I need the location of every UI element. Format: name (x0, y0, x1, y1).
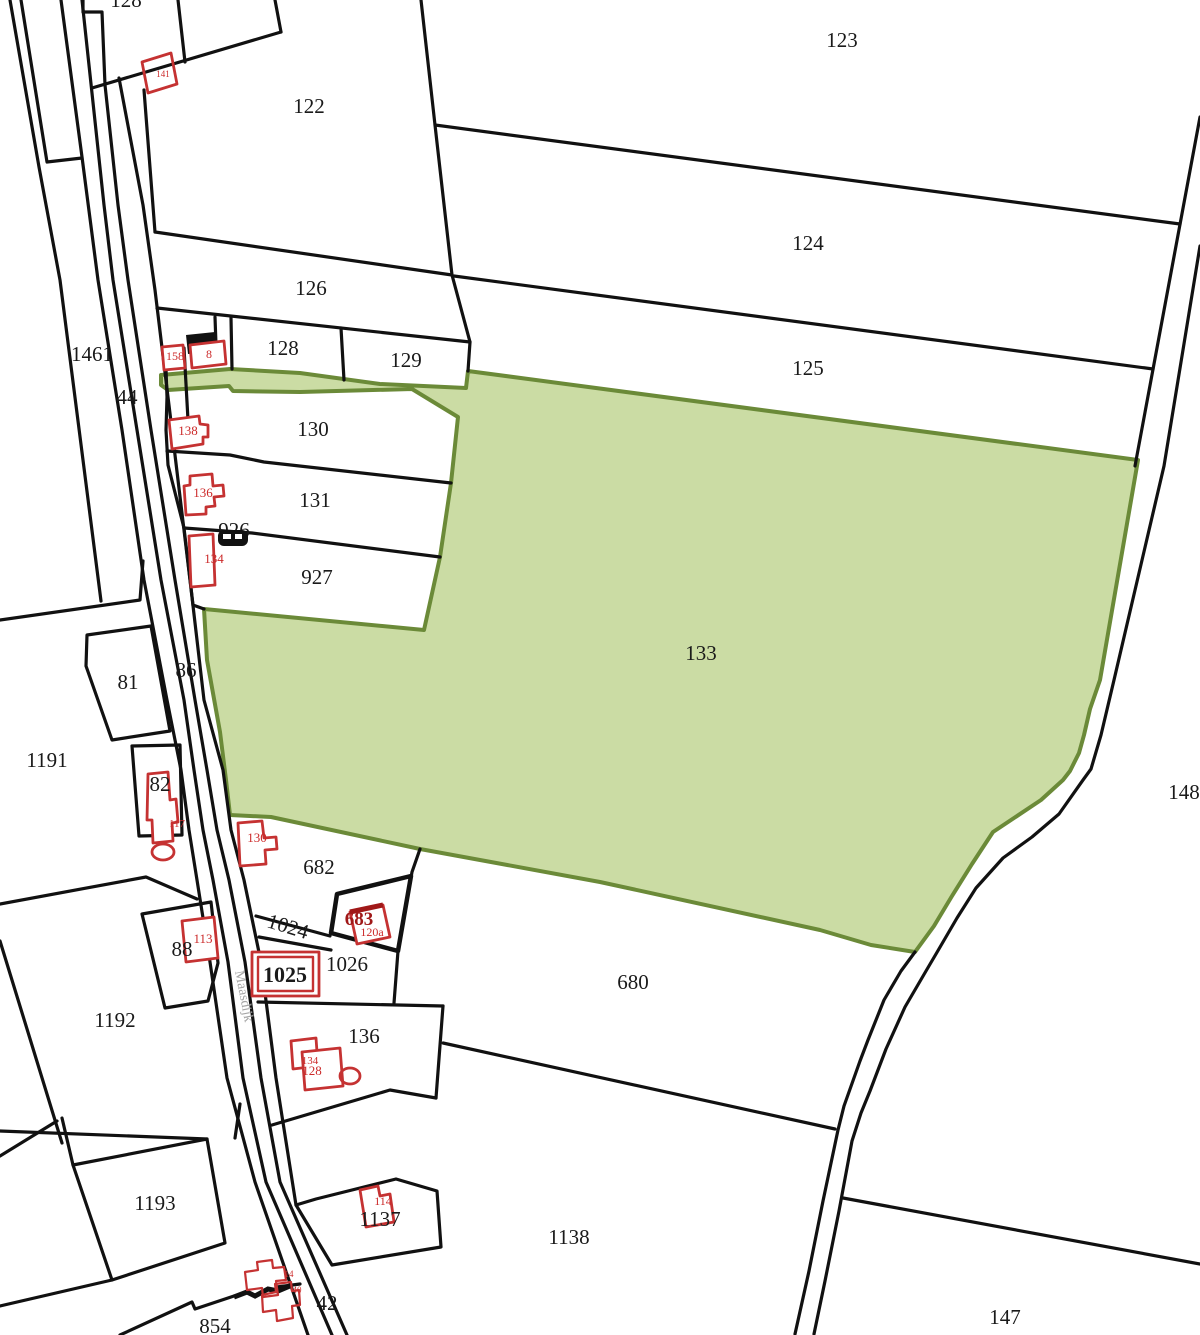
svg-text:1193: 1193 (134, 1191, 175, 1215)
svg-text:1025: 1025 (263, 962, 307, 987)
svg-text:136: 136 (193, 485, 213, 500)
svg-text:126: 126 (295, 276, 327, 300)
svg-text:8: 8 (206, 347, 212, 361)
svg-text:128: 128 (110, 0, 142, 12)
svg-text:158: 158 (166, 349, 184, 363)
svg-text:854: 854 (199, 1314, 231, 1335)
svg-text:114: 114 (374, 1194, 392, 1208)
svg-text:81: 81 (118, 670, 139, 694)
svg-text:680: 680 (617, 970, 649, 994)
svg-text:1192: 1192 (94, 1008, 135, 1032)
svg-text:42: 42 (317, 1291, 338, 1315)
svg-text:136: 136 (348, 1024, 380, 1048)
svg-text:148: 148 (1168, 780, 1200, 804)
svg-text:1138: 1138 (548, 1225, 589, 1249)
svg-text:138: 138 (178, 423, 198, 438)
svg-text:682: 682 (303, 855, 335, 879)
svg-text:130: 130 (247, 830, 267, 845)
svg-text:125: 125 (792, 356, 824, 380)
svg-text:1026: 1026 (326, 952, 368, 976)
svg-text:88: 88 (172, 937, 193, 961)
svg-text:1137: 1137 (359, 1207, 400, 1231)
svg-text:134: 134 (204, 551, 224, 566)
svg-text:120a: 120a (360, 925, 384, 939)
svg-text:129: 129 (390, 348, 422, 372)
svg-text:113: 113 (193, 931, 212, 946)
svg-text:123: 123 (826, 28, 858, 52)
svg-text:927: 927 (301, 565, 333, 589)
svg-text:1461: 1461 (71, 342, 113, 366)
svg-text:82: 82 (150, 772, 171, 796)
svg-text:44: 44 (117, 385, 139, 409)
svg-text:124: 124 (792, 231, 824, 255)
svg-text:14: 14 (285, 1269, 295, 1279)
svg-text:128: 128 (267, 336, 299, 360)
svg-text:117: 117 (169, 818, 186, 830)
svg-text:122: 122 (293, 94, 325, 118)
svg-text:40: 40 (293, 1285, 303, 1295)
svg-text:130: 130 (297, 417, 329, 441)
svg-text:128: 128 (302, 1063, 322, 1078)
svg-text:1191: 1191 (26, 748, 67, 772)
svg-text:147: 147 (989, 1305, 1021, 1329)
svg-text:86: 86 (176, 658, 197, 682)
svg-text:133: 133 (685, 641, 717, 665)
svg-text:141: 141 (156, 69, 170, 79)
svg-text:131: 131 (299, 488, 331, 512)
